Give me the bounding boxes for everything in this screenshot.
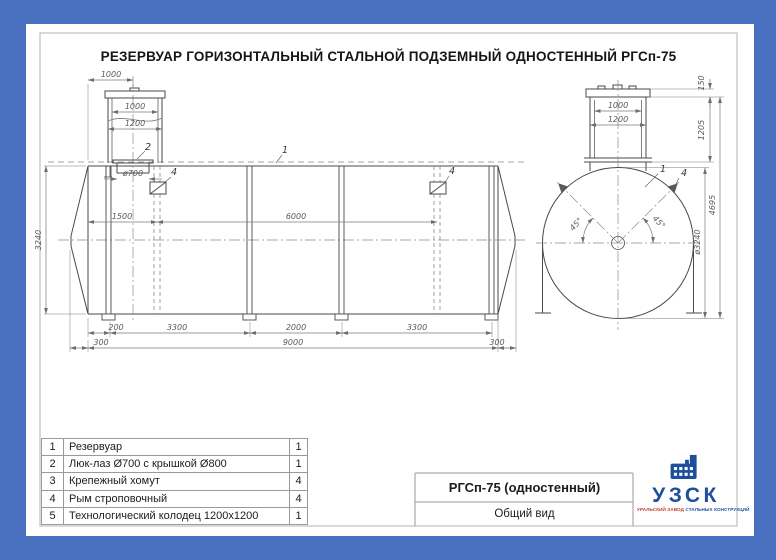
callout-manhole: 2 bbox=[145, 142, 151, 153]
logo-tagline-part1: УРАЛЬСКИЙ ЗАВОД bbox=[637, 507, 684, 512]
callout-lug: 4 bbox=[449, 166, 455, 177]
side-view bbox=[48, 76, 528, 322]
lifting-lug-right bbox=[430, 182, 446, 194]
part-name: Технологический колодец 1200x1200 bbox=[64, 507, 290, 524]
dim-label: 1000 bbox=[608, 101, 628, 110]
part-number: 5 bbox=[42, 507, 64, 524]
dim-label: 1200 bbox=[125, 119, 145, 128]
part-name: Люк-лаз Ø700 с крышкой Ø800 bbox=[64, 456, 290, 473]
dim-label: 3240 bbox=[34, 230, 43, 250]
dim-label: 3300 bbox=[167, 323, 187, 332]
angle-label: 45° bbox=[568, 216, 584, 233]
part-name: Резервуар bbox=[64, 439, 290, 456]
uzsk-logo: УЗСК УРАЛЬСКИЙ ЗАВОД СТАЛЬНЫХ КОНСТРУКЦИ… bbox=[637, 453, 735, 513]
model-designation: РГСп-75 (одностенный) bbox=[416, 474, 633, 501]
dim-label: ø700 bbox=[122, 169, 143, 178]
screenshot-stage: 1000 1000 1200 ø700 3240 1500 6000 200 3… bbox=[0, 0, 776, 560]
dim-label: ø3240 bbox=[693, 229, 702, 255]
logo-tagline-part2: СТАЛЬНЫХ КОНСТРУКЦИЙ bbox=[685, 507, 749, 512]
table-row: 1 Резервуар 1 bbox=[42, 439, 308, 456]
view-name: Общий вид bbox=[416, 503, 633, 525]
logo-tagline: УРАЛЬСКИЙ ЗАВОД СТАЛЬНЫХ КОНСТРУКЦИЙ bbox=[637, 508, 735, 513]
part-qty: 4 bbox=[290, 473, 308, 490]
dim-label: 300 bbox=[489, 338, 504, 347]
factory-icon bbox=[668, 453, 704, 480]
callout-lug: 4 bbox=[681, 168, 687, 179]
table-row: 2 Люк-лаз Ø700 с крышкой Ø800 1 bbox=[42, 456, 308, 473]
drawing-title: РЕЗЕРВУАР ГОРИЗОНТАЛЬНЫЙ СТАЛЬНОЙ ПОДЗЕМ… bbox=[40, 49, 737, 64]
dim-label: 200 bbox=[108, 323, 123, 332]
part-qty: 1 bbox=[290, 456, 308, 473]
dim-label: 1500 bbox=[112, 212, 132, 221]
dim-label: 300 bbox=[93, 338, 108, 347]
dim-label: 2000 bbox=[286, 323, 306, 332]
table-row: 4 Рым строповочный 4 bbox=[42, 490, 308, 507]
callout-tank: 1 bbox=[660, 164, 666, 175]
callout-tank: 1 bbox=[282, 145, 288, 156]
dim-label: 1200 bbox=[608, 115, 628, 124]
dim-label: 4695 bbox=[708, 195, 717, 215]
supports bbox=[535, 244, 702, 313]
part-number: 1 bbox=[42, 439, 64, 456]
dim-label: 1205 bbox=[697, 120, 706, 140]
part-name: Рым строповочный bbox=[64, 490, 290, 507]
dim-label: 1000 bbox=[125, 102, 145, 111]
angle-label: 45° bbox=[651, 214, 667, 231]
lifting-lug-left bbox=[150, 182, 166, 194]
table-row: 5 Технологический колодец 1200x1200 1 bbox=[42, 507, 308, 524]
parts-table: 1 Резервуар 1 2 Люк-лаз Ø700 с крышкой Ø… bbox=[41, 438, 308, 525]
table-row: 3 Крепежный хомут 4 bbox=[42, 473, 308, 490]
part-number: 4 bbox=[42, 490, 64, 507]
dim-label: 1000 bbox=[101, 70, 121, 79]
callout-lug: 4 bbox=[171, 167, 177, 178]
part-qty: 1 bbox=[290, 507, 308, 524]
part-name: Крепежный хомут bbox=[64, 473, 290, 490]
part-number: 2 bbox=[42, 456, 64, 473]
dim-label: 9000 bbox=[283, 338, 303, 347]
logo-abbr: УЗСК bbox=[637, 485, 735, 506]
dim-label: 6000 bbox=[286, 212, 306, 221]
dim-label: 150 bbox=[697, 75, 706, 90]
part-number: 3 bbox=[42, 473, 64, 490]
dim-label: 3300 bbox=[407, 323, 427, 332]
part-qty: 4 bbox=[290, 490, 308, 507]
part-qty: 1 bbox=[290, 439, 308, 456]
